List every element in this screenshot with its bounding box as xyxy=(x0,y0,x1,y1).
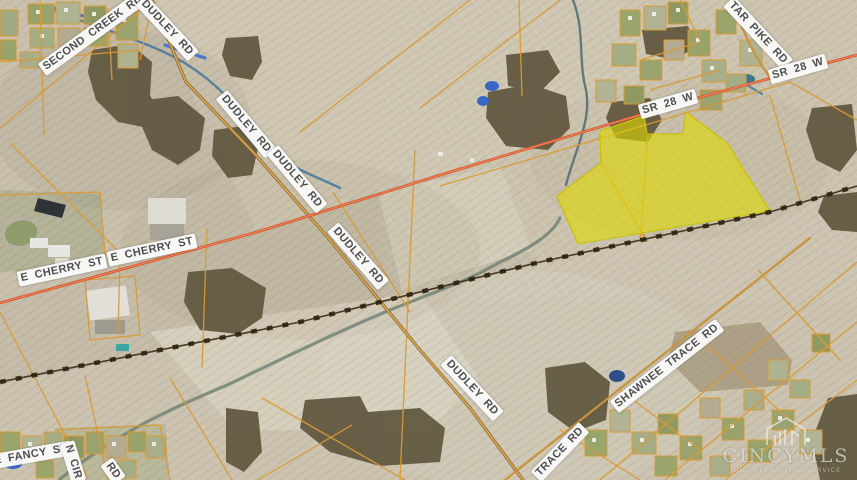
warehouse-building xyxy=(86,285,130,320)
map-viewport[interactable]: SECOND CREEK RD DUDLEY RD DUDLEY RD DUDL… xyxy=(0,0,857,480)
commercial-building xyxy=(148,198,186,224)
aerial-imagery xyxy=(0,0,857,480)
